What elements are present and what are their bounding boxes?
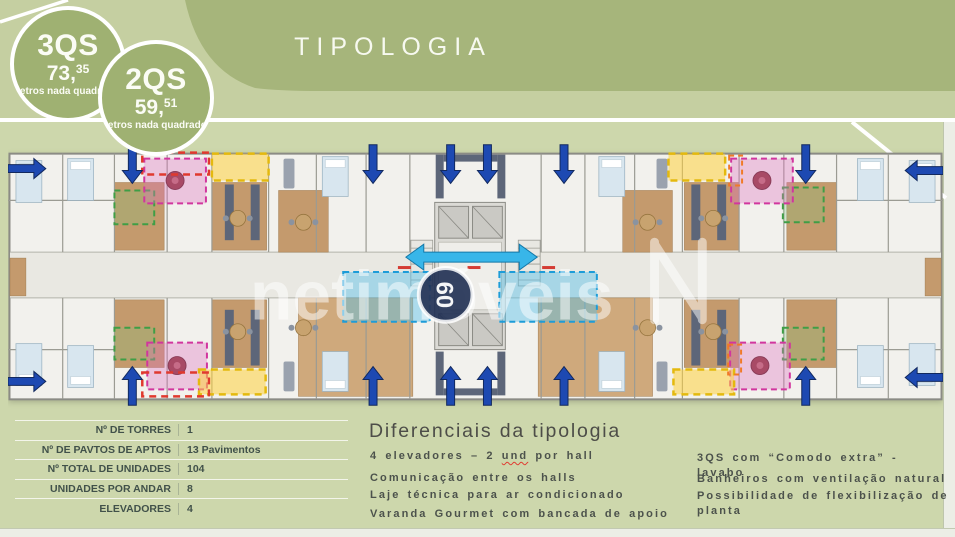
badge-2qs-area-sup: 51 <box>164 96 177 110</box>
spec-label: Nº DE TORRES <box>15 424 178 436</box>
spec-value: 104 <box>178 463 205 475</box>
differential-item: Varanda Gourmet com bancada de apoio <box>370 507 669 522</box>
badge-2qs-name: 2QS <box>125 64 187 96</box>
specs-table: Nº DE TORRES 1 Nº DE PAVTOS DE APTOS 13 … <box>15 420 348 518</box>
differential-item-post: por hall <box>528 450 594 462</box>
spec-value: 8 <box>178 483 193 495</box>
badge-3qs-name: 3QS <box>37 30 99 62</box>
differential-item-pre: 4 elevadores – 2 <box>370 450 502 462</box>
spec-value: 1 <box>178 424 193 436</box>
badge-2qs-area: 59,51 <box>135 96 178 119</box>
spec-value: 13 Pavimentos <box>178 444 261 456</box>
spec-label: Nº TOTAL DE UNIDADES <box>15 463 178 475</box>
table-row: Nº TOTAL DE UNIDADES 104 <box>15 459 348 479</box>
spec-label: ELEVADORES <box>15 503 178 515</box>
badge-3qs-area-sup: 35 <box>76 62 89 76</box>
page-title: TIPOLOGIA <box>288 33 498 62</box>
differentials-title: Diferenciais da tipologia <box>369 420 621 443</box>
floor-plan: netimóveis 60 <box>8 140 943 410</box>
spec-value: 4 <box>178 503 193 515</box>
badge-2qs-unit: Metros nada quadrados <box>100 119 213 132</box>
differential-item: Comunicação entre os halls <box>370 471 577 486</box>
spec-label: Nº DE PAVTOS DE APTOS <box>15 444 178 456</box>
badge-3qs-area: 73,35 <box>47 62 90 85</box>
table-row: UNIDADES POR ANDAR 8 <box>15 479 348 499</box>
differential-item: Laje técnica para ar condicionado <box>370 488 625 503</box>
differential-item: 4 elevadores – 2 und por hall <box>370 449 594 464</box>
watermark-logo-glyph: 60 <box>431 282 458 309</box>
badge-2qs: 2QS 59,51 Metros nada quadrados <box>98 40 214 156</box>
table-row: Nº DE TORRES 1 <box>15 420 348 440</box>
badge-3qs-area-main: 73, <box>47 62 76 85</box>
spec-label: UNIDADES POR ANDAR <box>15 483 178 495</box>
differential-item: Possibilidade de flexibilização de plant… <box>697 489 949 519</box>
table-row: ELEVADORES 4 <box>15 498 348 518</box>
table-row: Nº DE PAVTOS DE APTOS 13 Pavimentos <box>15 440 348 460</box>
differential-item-misspelled-word: und <box>502 450 528 462</box>
badge-2qs-area-main: 59, <box>135 96 164 119</box>
differential-item: Banheiros com ventilação natural <box>697 472 949 487</box>
